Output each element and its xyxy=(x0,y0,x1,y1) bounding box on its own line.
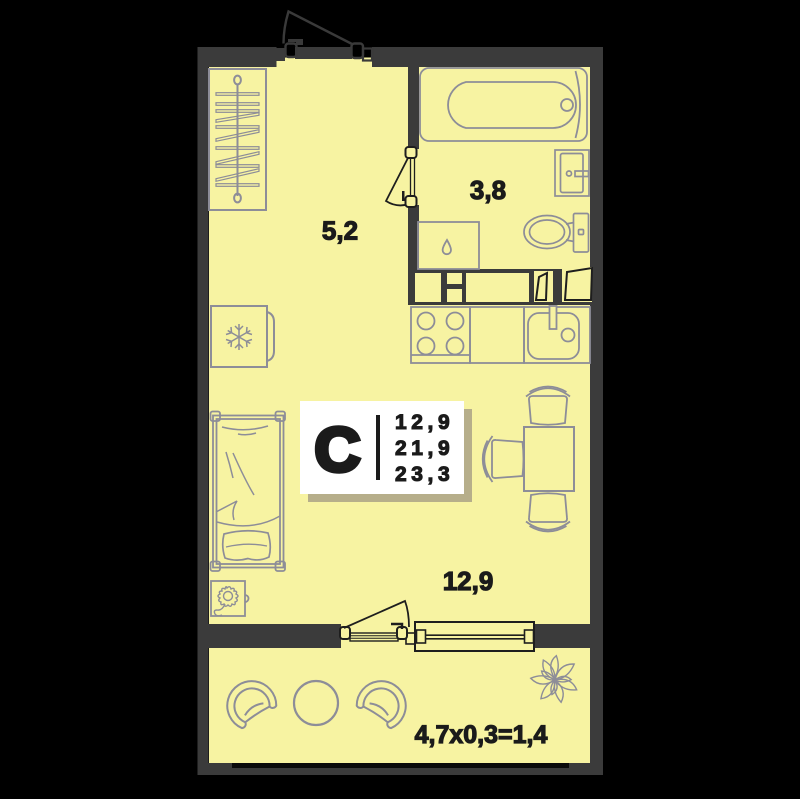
svg-text:С: С xyxy=(315,416,361,485)
svg-text:4,7x0,3=1,4: 4,7x0,3=1,4 xyxy=(415,721,548,749)
svg-text:5,2: 5,2 xyxy=(322,216,358,246)
svg-text:12,9: 12,9 xyxy=(395,411,454,434)
svg-text:3,8: 3,8 xyxy=(470,175,506,205)
svg-text:12,9: 12,9 xyxy=(443,566,494,596)
svg-text:23,3: 23,3 xyxy=(395,463,454,486)
svg-text:21,9: 21,9 xyxy=(395,437,454,460)
